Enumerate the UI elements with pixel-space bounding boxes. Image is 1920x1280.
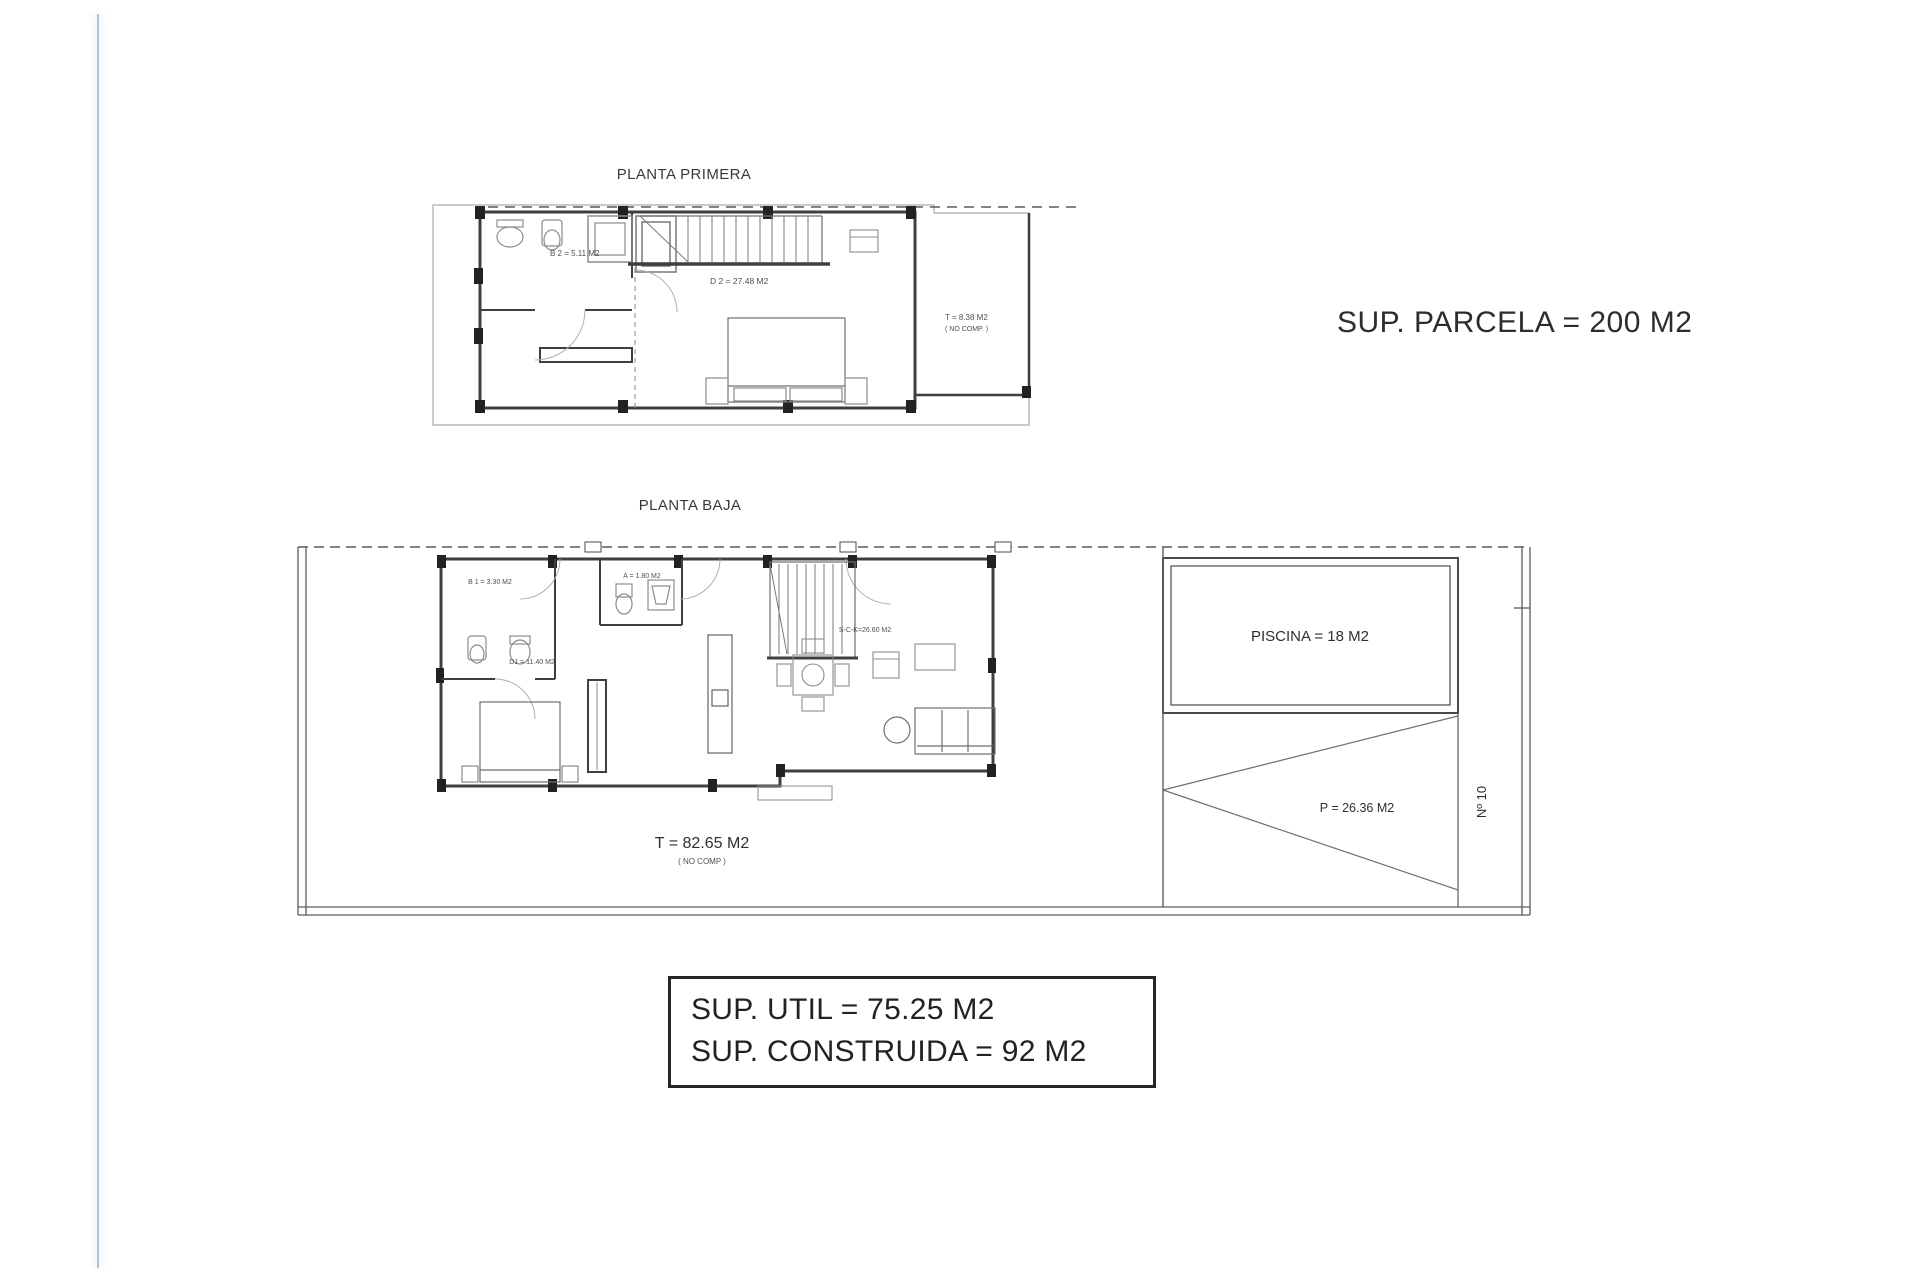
d1-label: D1 = 11.40 M2 xyxy=(509,659,555,666)
first-floor-bathroom-label: B 2 = 5.11 M2 xyxy=(550,249,600,258)
page-edge-line xyxy=(97,14,99,1268)
ground-floor-plan: B 1 = 3.30 M2 A = 1.80 M2 D1 = 11.40 M2 … xyxy=(290,540,1540,932)
house-outer-walls xyxy=(441,559,993,786)
patio-area-label: T = 82.65 M2 xyxy=(655,835,750,852)
patio-nocomp-label: ( NO COMP ) xyxy=(678,857,726,866)
parking-label: P = 26.36 M2 xyxy=(1320,801,1395,815)
b1-label: B 1 = 3.30 M2 xyxy=(468,579,512,586)
first-floor-plan: B 2 = 5.11 M2 D 2 = 27.48 M2 T = 8.38 M2… xyxy=(400,150,1090,450)
sck-label: S-C-K=26.60 M2 xyxy=(839,627,891,634)
parking-area xyxy=(1163,547,1458,907)
summary-box: SUP. UTIL = 75.25 M2 SUP. CONSTRUIDA = 9… xyxy=(668,976,1156,1088)
summary-util-line: SUP. UTIL = 75.25 M2 xyxy=(691,989,1153,1031)
parcel-area-label: SUP. PARCELA = 200 M2 xyxy=(1337,306,1692,340)
plot-number-label: Nº 10 xyxy=(1474,786,1489,818)
first-floor-terrace-nocomp-label: ( NO COMP. ) xyxy=(945,326,988,333)
ground-floor-title: PLANTA BAJA xyxy=(540,497,840,514)
pool-label: PISCINA = 18 M2 xyxy=(1251,628,1369,645)
first-floor-terrace-label: T = 8.38 M2 xyxy=(945,313,988,322)
first-floor-bedroom-label: D 2 = 27.48 M2 xyxy=(710,276,769,286)
aseo-label: A = 1.80 M2 xyxy=(623,573,661,580)
floorplan-page: { "annotations": { "parcel_area": "SUP. … xyxy=(0,0,1920,1280)
porch-step xyxy=(758,786,832,800)
summary-construida-line: SUP. CONSTRUIDA = 92 M2 xyxy=(691,1031,1153,1073)
first-floor-terrace-walls xyxy=(915,213,1029,395)
